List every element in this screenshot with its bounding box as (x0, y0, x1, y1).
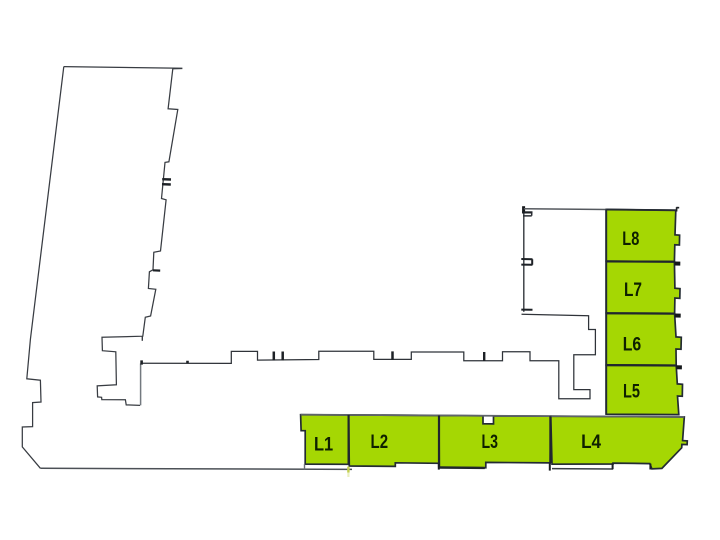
svg-text:L5: L5 (623, 382, 640, 403)
svg-text:L2: L2 (371, 432, 389, 453)
svg-text:L1: L1 (314, 435, 333, 456)
svg-text:L8: L8 (622, 229, 639, 250)
svg-text:L6: L6 (623, 334, 642, 355)
svg-text:L7: L7 (624, 280, 642, 301)
svg-text:L4: L4 (581, 432, 601, 453)
svg-text:L3: L3 (481, 432, 498, 453)
